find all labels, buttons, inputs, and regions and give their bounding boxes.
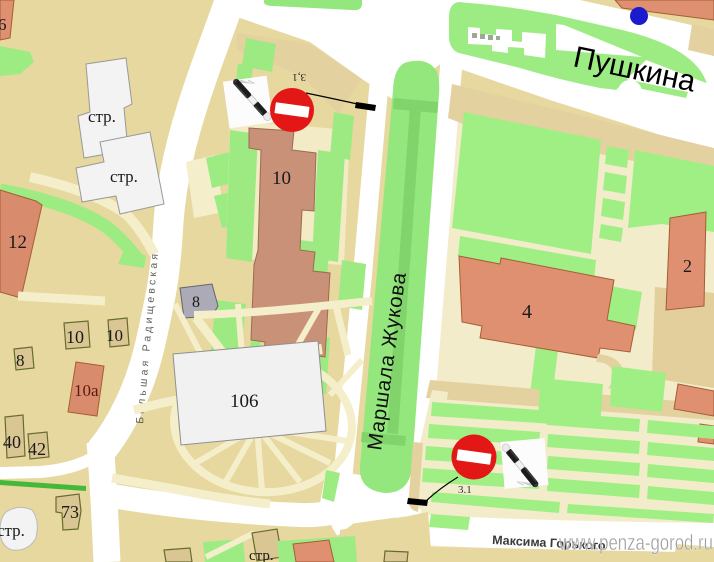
svg-text:10: 10 <box>272 168 291 189</box>
svg-text:3,1: 3,1 <box>292 71 306 83</box>
svg-text:73: 73 <box>61 502 79 522</box>
svg-text:8: 8 <box>16 351 25 370</box>
svg-text:6: 6 <box>0 15 7 34</box>
svg-text:стр.: стр. <box>88 107 116 126</box>
svg-text:12: 12 <box>8 232 27 253</box>
svg-text:106: 106 <box>230 391 259 412</box>
svg-text:www.penza-gorod.ru: www.penza-gorod.ru <box>558 530 713 555</box>
svg-text:10а: 10а <box>74 381 99 400</box>
svg-text:стр.: стр. <box>110 167 138 186</box>
svg-text:стр.: стр. <box>249 548 274 562</box>
svg-text:10: 10 <box>66 327 84 347</box>
svg-text:42: 42 <box>28 439 46 459</box>
svg-text:3.1: 3.1 <box>458 484 472 496</box>
svg-text:10: 10 <box>106 326 123 345</box>
svg-text:4: 4 <box>522 301 532 323</box>
svg-text:2: 2 <box>683 256 692 276</box>
svg-text:40: 40 <box>3 432 21 452</box>
svg-text:стр.: стр. <box>0 521 25 540</box>
svg-text:8: 8 <box>192 294 200 311</box>
